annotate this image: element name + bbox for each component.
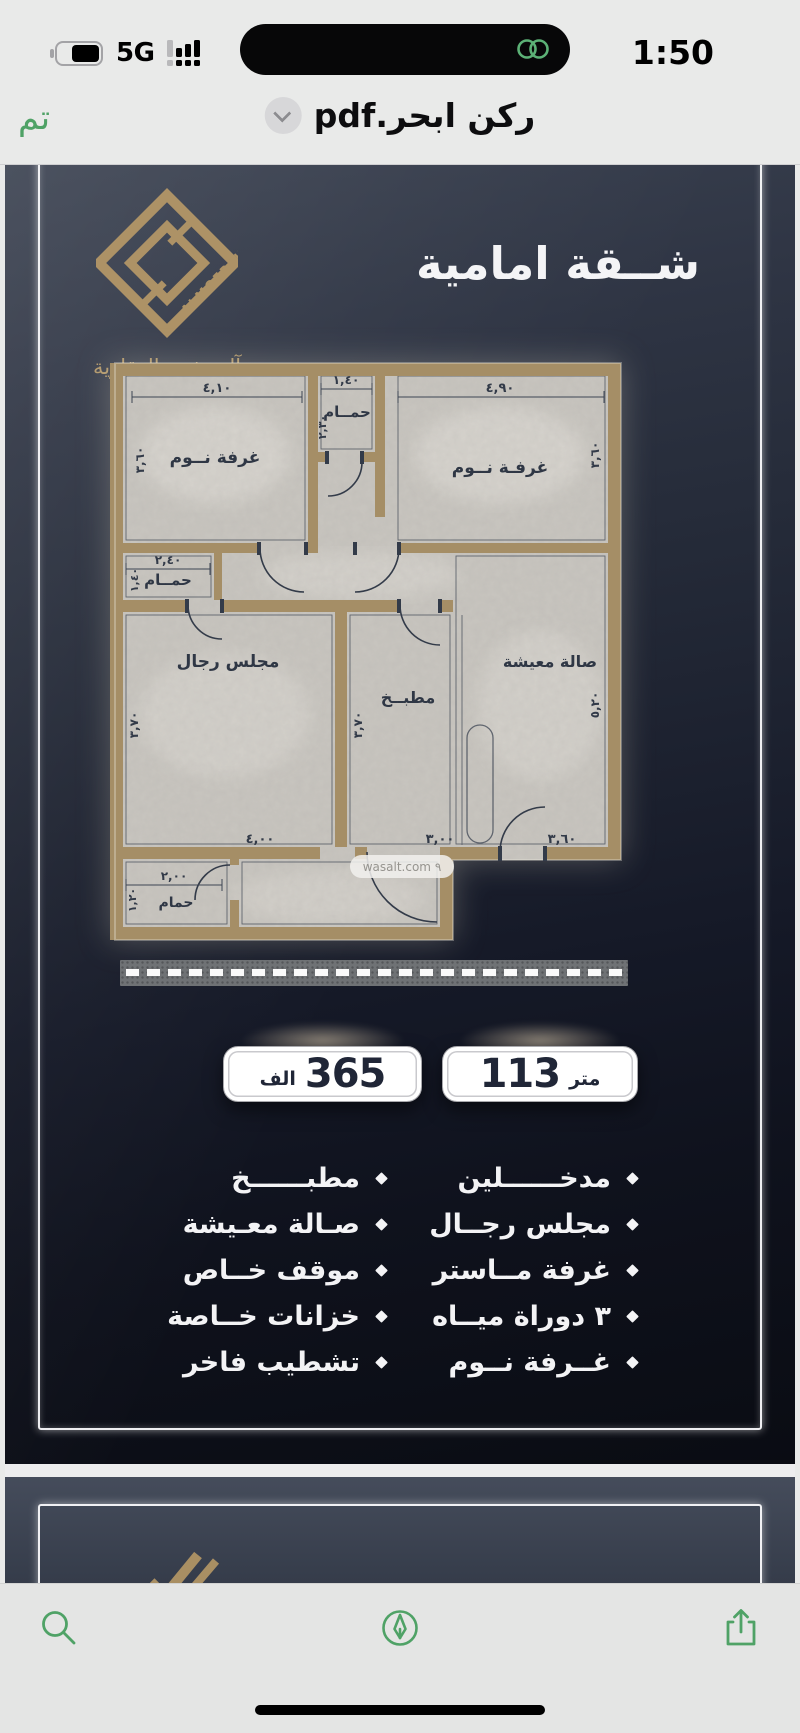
- svg-text:صالة معيشة: صالة معيشة: [503, 652, 597, 671]
- list-item: مجلس رجــال: [416, 1201, 637, 1247]
- svg-text:٢,٤٠: ٢,٤٠: [155, 553, 182, 567]
- brand-logo: ALMOFREH آل مفرح العقارية: [87, 185, 247, 379]
- svg-text:٢,٠٠: ٢,٠٠: [161, 869, 188, 883]
- pdf-page-1: ALMOFREH آل مفرح العقارية شــقة امامية: [5, 165, 795, 1464]
- svg-text:wasalt.com ٩: wasalt.com ٩: [363, 860, 442, 874]
- svg-text:٣,٠٠: ٣,٠٠: [426, 832, 455, 847]
- svg-text:حمام: حمام: [159, 895, 194, 911]
- status-left-cluster: 5G: [55, 38, 200, 68]
- svg-text:غرفة نــوم: غرفة نــوم: [170, 448, 261, 468]
- list-item: موقف خــاص: [165, 1247, 386, 1293]
- diamond-bullet-icon: [375, 1172, 388, 1185]
- linked-rings-icon: [510, 34, 556, 65]
- svg-text:٣,٦٠: ٣,٦٠: [133, 447, 147, 474]
- dual-sim-signal-icon: [167, 40, 200, 66]
- svg-text:حمــام: حمــام: [323, 403, 371, 421]
- done-button[interactable]: تم: [18, 98, 50, 138]
- area-unit: متر: [569, 1068, 600, 1090]
- feature-list: مدخــــــلين مطبــــــخ مجلس رجــال صـال…: [165, 1155, 637, 1385]
- list-item: صـالة معـيشة: [165, 1201, 386, 1247]
- svg-text:٤,٩٠: ٤,٩٠: [486, 381, 515, 396]
- svg-text:١,٢٠: ١,٢٠: [126, 888, 139, 912]
- price-badge: الف 365: [223, 1046, 422, 1102]
- diamond-bullet-icon: [375, 1218, 388, 1231]
- svg-text:٤,١٠: ٤,١٠: [203, 381, 232, 396]
- bottom-toolbar: [0, 1583, 800, 1733]
- svg-text:٣,٧٠: ٣,٧٠: [351, 712, 365, 739]
- nav-bar: تم ركن ابحر.pdf: [0, 78, 800, 165]
- diamond-bullet-icon: [626, 1172, 639, 1185]
- diamond-bullet-icon: [375, 1356, 388, 1369]
- floor-plan: ٤,١٠ ١,٤٠ ٤,٩٠ ٢,٤٠ ٢,٠٠ ٤,٠٠ ٣,٠٠ ٣,٦٠ …: [110, 355, 625, 945]
- markup-button[interactable]: [377, 1605, 423, 1651]
- chevron-down-icon[interactable]: [265, 97, 302, 134]
- page-separator: [5, 1464, 795, 1477]
- list-item: غرفة مــاستر: [416, 1247, 637, 1293]
- list-item: مطبــــــخ: [165, 1155, 386, 1201]
- share-button[interactable]: [718, 1605, 764, 1651]
- list-item: خزانات خــاصة: [165, 1293, 386, 1339]
- area-badge: 113 متر: [442, 1046, 638, 1102]
- document-title: ركن ابحر.pdf: [314, 96, 536, 135]
- list-item: ٣ دوراة ميــاه: [416, 1293, 637, 1339]
- network-type-label: 5G: [116, 38, 154, 68]
- svg-text:٣,٧٠: ٣,٧٠: [127, 712, 141, 739]
- svg-text:٥,٢٠: ٥,٢٠: [588, 692, 602, 719]
- diamond-bullet-icon: [626, 1264, 639, 1277]
- road-dashes: [126, 969, 622, 976]
- road-separator: [120, 960, 628, 986]
- battery-icon: [55, 41, 103, 66]
- svg-text:١,٤٠: ١,٤٠: [333, 373, 360, 387]
- price-unit: الف: [260, 1068, 296, 1090]
- svg-text:٣,٦٠: ٣,٦٠: [588, 442, 602, 469]
- list-item: غــرفة نــوم: [416, 1339, 637, 1385]
- diamond-bullet-icon: [626, 1356, 639, 1369]
- list-item: تشطيب فاخر: [165, 1339, 386, 1385]
- svg-text:٤,٠٠: ٤,٠٠: [246, 832, 275, 847]
- diamond-bullet-icon: [375, 1310, 388, 1323]
- share-icon: [728, 1611, 754, 1645]
- price-value: 365: [305, 1051, 386, 1097]
- status-bar: 5G 1:50: [0, 0, 800, 78]
- pdf-page-2: [5, 1477, 795, 1583]
- dynamic-island[interactable]: [240, 24, 570, 75]
- svg-text:مجلس رجال: مجلس رجال: [177, 652, 280, 672]
- diamond-bullet-icon: [375, 1264, 388, 1277]
- search-icon: [44, 1613, 75, 1644]
- markup-pen-icon: [384, 1612, 417, 1645]
- clock-label: 1:50: [632, 33, 714, 72]
- diamond-bullet-icon: [626, 1310, 639, 1323]
- area-value: 113: [480, 1051, 561, 1097]
- search-button[interactable]: [36, 1605, 82, 1651]
- page-title: شــقة امامية: [416, 237, 700, 290]
- diamond-bullet-icon: [626, 1218, 639, 1231]
- almofreh-logo-partial-icon: [140, 1537, 235, 1583]
- home-indicator[interactable]: [255, 1705, 545, 1715]
- list-item: مدخــــــلين: [416, 1155, 637, 1201]
- svg-text:مطبــخ: مطبــخ: [381, 688, 436, 707]
- svg-text:١,٤٠: ١,٤٠: [128, 568, 141, 592]
- svg-text:غرفـة نــوم: غرفـة نــوم: [452, 458, 548, 478]
- svg-text:حمــام: حمــام: [144, 571, 192, 589]
- almofreh-logo-icon: ALMOFREH: [96, 185, 238, 347]
- watermark: wasalt.com ٩: [350, 855, 454, 878]
- document-title-menu[interactable]: ركن ابحر.pdf: [265, 96, 536, 135]
- svg-text:٣,٦٠: ٣,٦٠: [548, 832, 577, 847]
